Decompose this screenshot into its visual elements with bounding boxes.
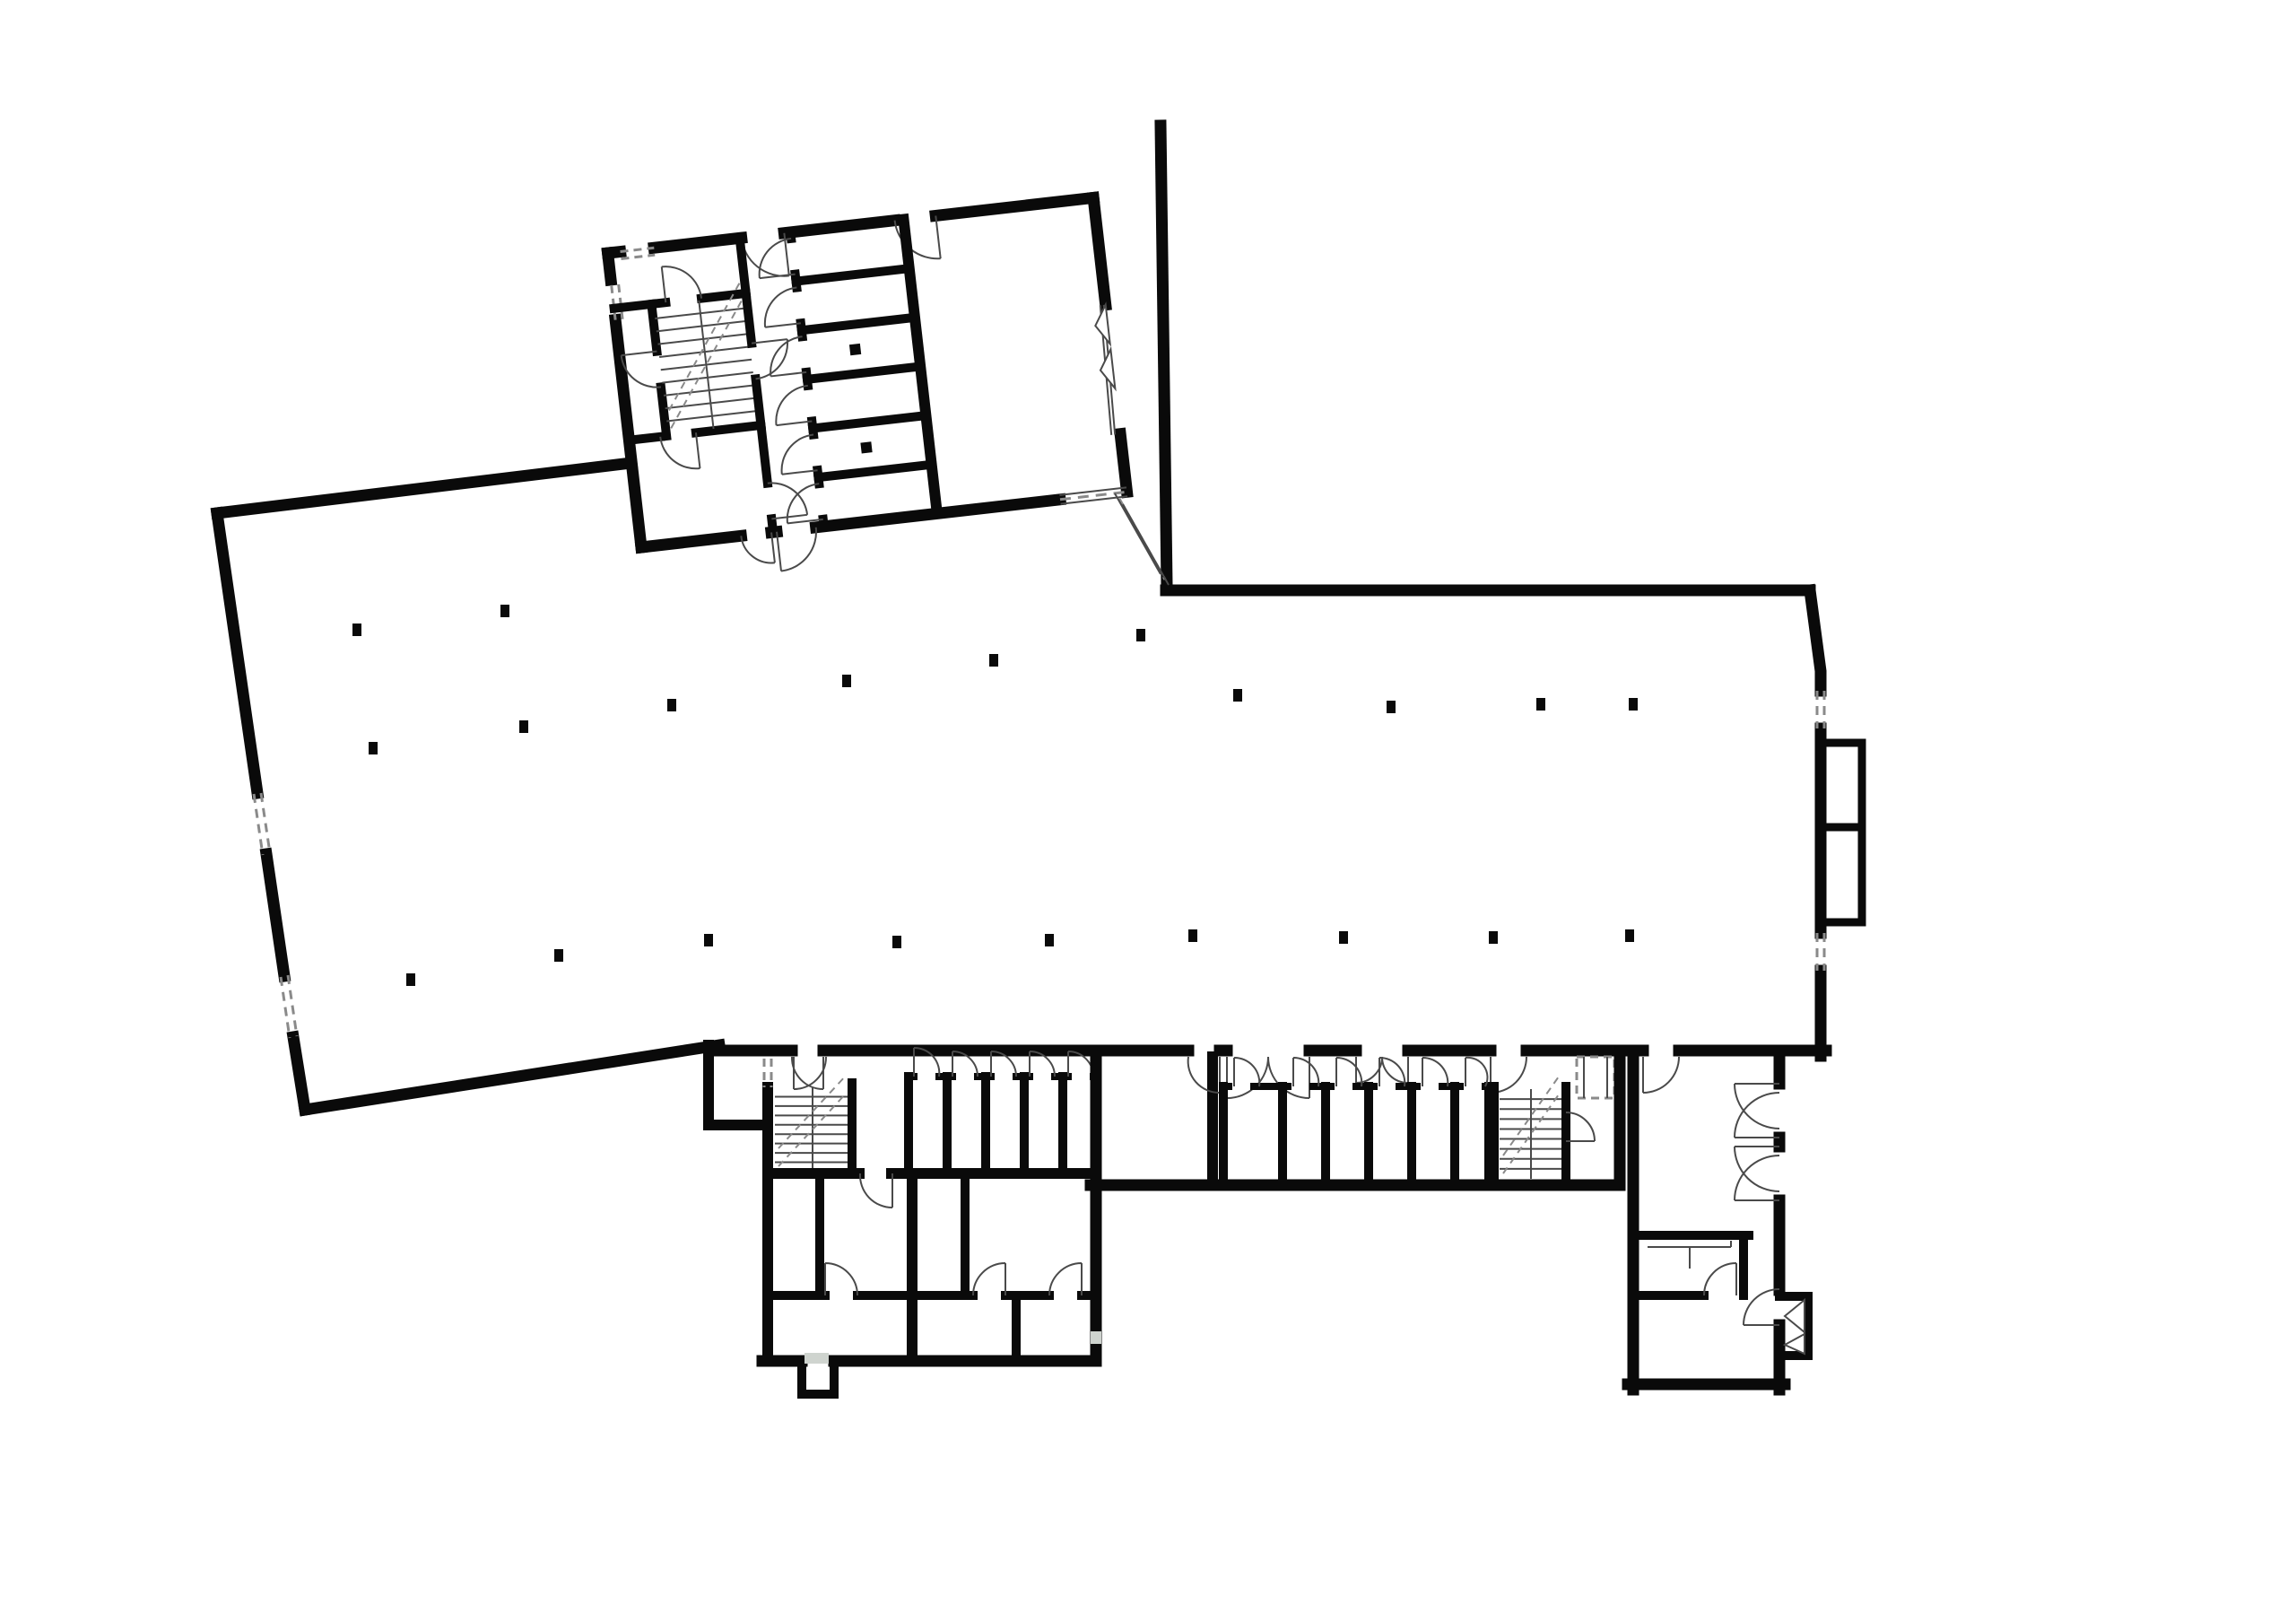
garage-hall-path (1810, 590, 1821, 1056)
column-marker (667, 699, 676, 711)
floor-plan-page (0, 0, 2296, 1622)
left-wing-path (973, 1263, 1005, 1295)
layer-left-wing (709, 1045, 1101, 1394)
garage-hall-path (305, 1045, 719, 1110)
column-marker (352, 624, 361, 636)
annex-building-path (641, 500, 1060, 547)
right-wing-path (1704, 1263, 1736, 1295)
column-marker (554, 949, 563, 962)
annex-building-path (767, 336, 806, 376)
column-marker (406, 973, 415, 986)
left-wing-path (825, 1263, 857, 1295)
middle-block-path (1577, 1057, 1614, 1098)
stair (1500, 1077, 1562, 1179)
annex-building-path (761, 288, 801, 327)
column-marker (500, 605, 509, 617)
column-marker (1625, 929, 1634, 942)
column-marker (1387, 701, 1396, 713)
column-marker (1233, 689, 1242, 702)
floor-plan-svg (0, 0, 2296, 1622)
annex-building-path (772, 386, 812, 425)
middle-block-path (1234, 1058, 1259, 1086)
right-wing-path (1735, 1147, 1779, 1191)
middle-block-path (1356, 1057, 1382, 1083)
middle-block-path (1422, 1058, 1448, 1086)
column-marker (1629, 698, 1638, 711)
middle-block-path (1223, 1086, 1489, 1185)
annex-building-path (777, 528, 821, 571)
stair (775, 1075, 850, 1172)
column-marker (989, 654, 998, 667)
left-wing-path (709, 1045, 768, 1125)
annex-building-path (752, 339, 791, 379)
annex-building-rect (860, 441, 872, 453)
layer-ramp-strip (1115, 126, 1169, 585)
annex-building-path (778, 434, 817, 474)
left-wing-path (947, 1077, 1063, 1173)
right-wing-path (1785, 1300, 1805, 1354)
left-wing-rect (1091, 1331, 1101, 1344)
middle-block-path (1293, 1058, 1318, 1086)
ramp-strip-path (1161, 126, 1167, 585)
middle-block-path (1465, 1058, 1487, 1086)
annex-building-rect (849, 344, 861, 355)
layer-columns (352, 605, 1638, 986)
left-wing-path (1049, 1263, 1082, 1295)
right-wing-path (1648, 1241, 1731, 1269)
annex-building-path (1059, 487, 1127, 503)
left-wing-path (794, 1057, 826, 1089)
middle-block-path (1268, 1057, 1309, 1098)
right-wing-path (1735, 1093, 1779, 1138)
middle-block-path (1227, 1057, 1268, 1098)
column-marker (1136, 629, 1145, 641)
left-wing-path (792, 1057, 823, 1089)
right-wing-path (1643, 1057, 1679, 1093)
layer-middle-block (1091, 1051, 1620, 1185)
layer-annex-building (608, 197, 1132, 586)
column-marker (519, 720, 528, 733)
annex-building-path (608, 197, 1093, 253)
column-marker (704, 934, 713, 946)
right-wing-path (1735, 1155, 1779, 1200)
garage-hall-path (1826, 743, 1862, 922)
annex-building-path (662, 263, 701, 302)
middle-block-path (1584, 1057, 1607, 1098)
layer-right-wing (1628, 1051, 1808, 1390)
column-marker (1489, 931, 1498, 944)
column-marker (369, 742, 378, 754)
garage-hall-path (217, 513, 305, 1110)
right-wing-path (1735, 1084, 1779, 1129)
column-marker (1536, 698, 1545, 711)
annex-building-path (608, 253, 641, 547)
column-marker (1188, 929, 1197, 942)
column-marker (1045, 934, 1054, 946)
column-marker (842, 675, 851, 687)
column-marker (892, 936, 901, 948)
garage-hall-path (217, 463, 631, 513)
annex-building-path (611, 279, 622, 320)
column-marker (1339, 931, 1348, 944)
annex-building-path (740, 238, 773, 532)
layer-garage-hall (217, 463, 1862, 1110)
left-wing-rect (804, 1353, 829, 1364)
